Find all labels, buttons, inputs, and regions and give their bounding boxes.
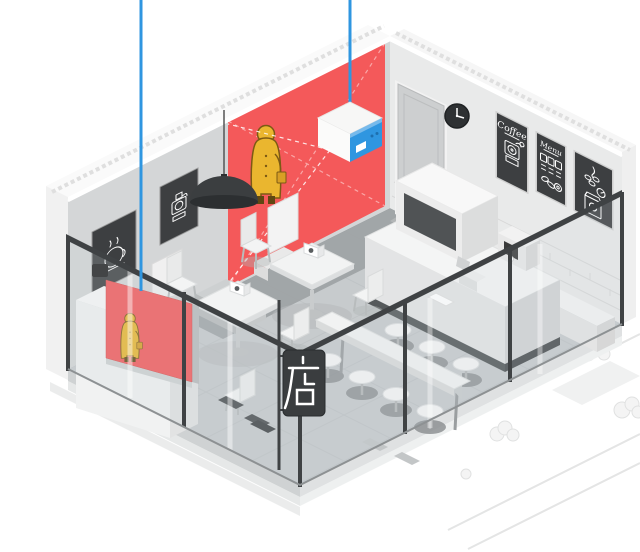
wall-clock <box>445 104 469 128</box>
coffee-shop-illustration: Isometric cutaway illustration of a coff… <box>0 0 640 552</box>
isometric-scene: Isometric cutaway illustration of a coff… <box>0 0 640 552</box>
